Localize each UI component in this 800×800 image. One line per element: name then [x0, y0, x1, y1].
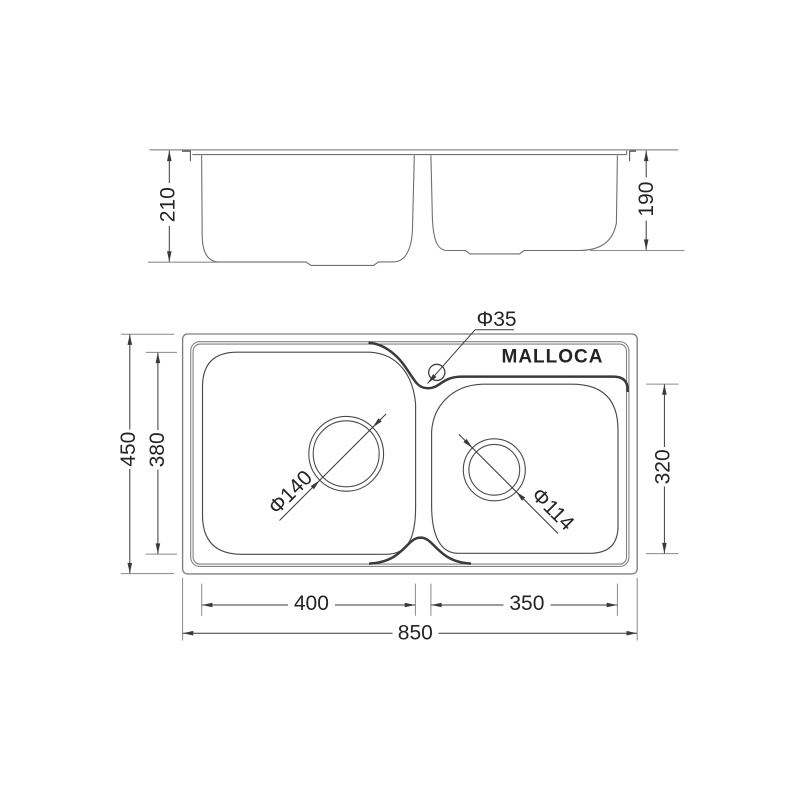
svg-text:Φ35: Φ35: [476, 308, 516, 331]
svg-text:210: 210: [156, 187, 179, 222]
svg-text:MALLOCA: MALLOCA: [502, 347, 604, 368]
svg-text:380: 380: [146, 432, 169, 467]
svg-text:320: 320: [652, 449, 675, 484]
svg-text:190: 190: [635, 182, 658, 217]
svg-text:850: 850: [398, 621, 433, 644]
svg-text:400: 400: [294, 592, 329, 615]
svg-text:450: 450: [117, 432, 140, 467]
svg-text:350: 350: [509, 592, 544, 615]
